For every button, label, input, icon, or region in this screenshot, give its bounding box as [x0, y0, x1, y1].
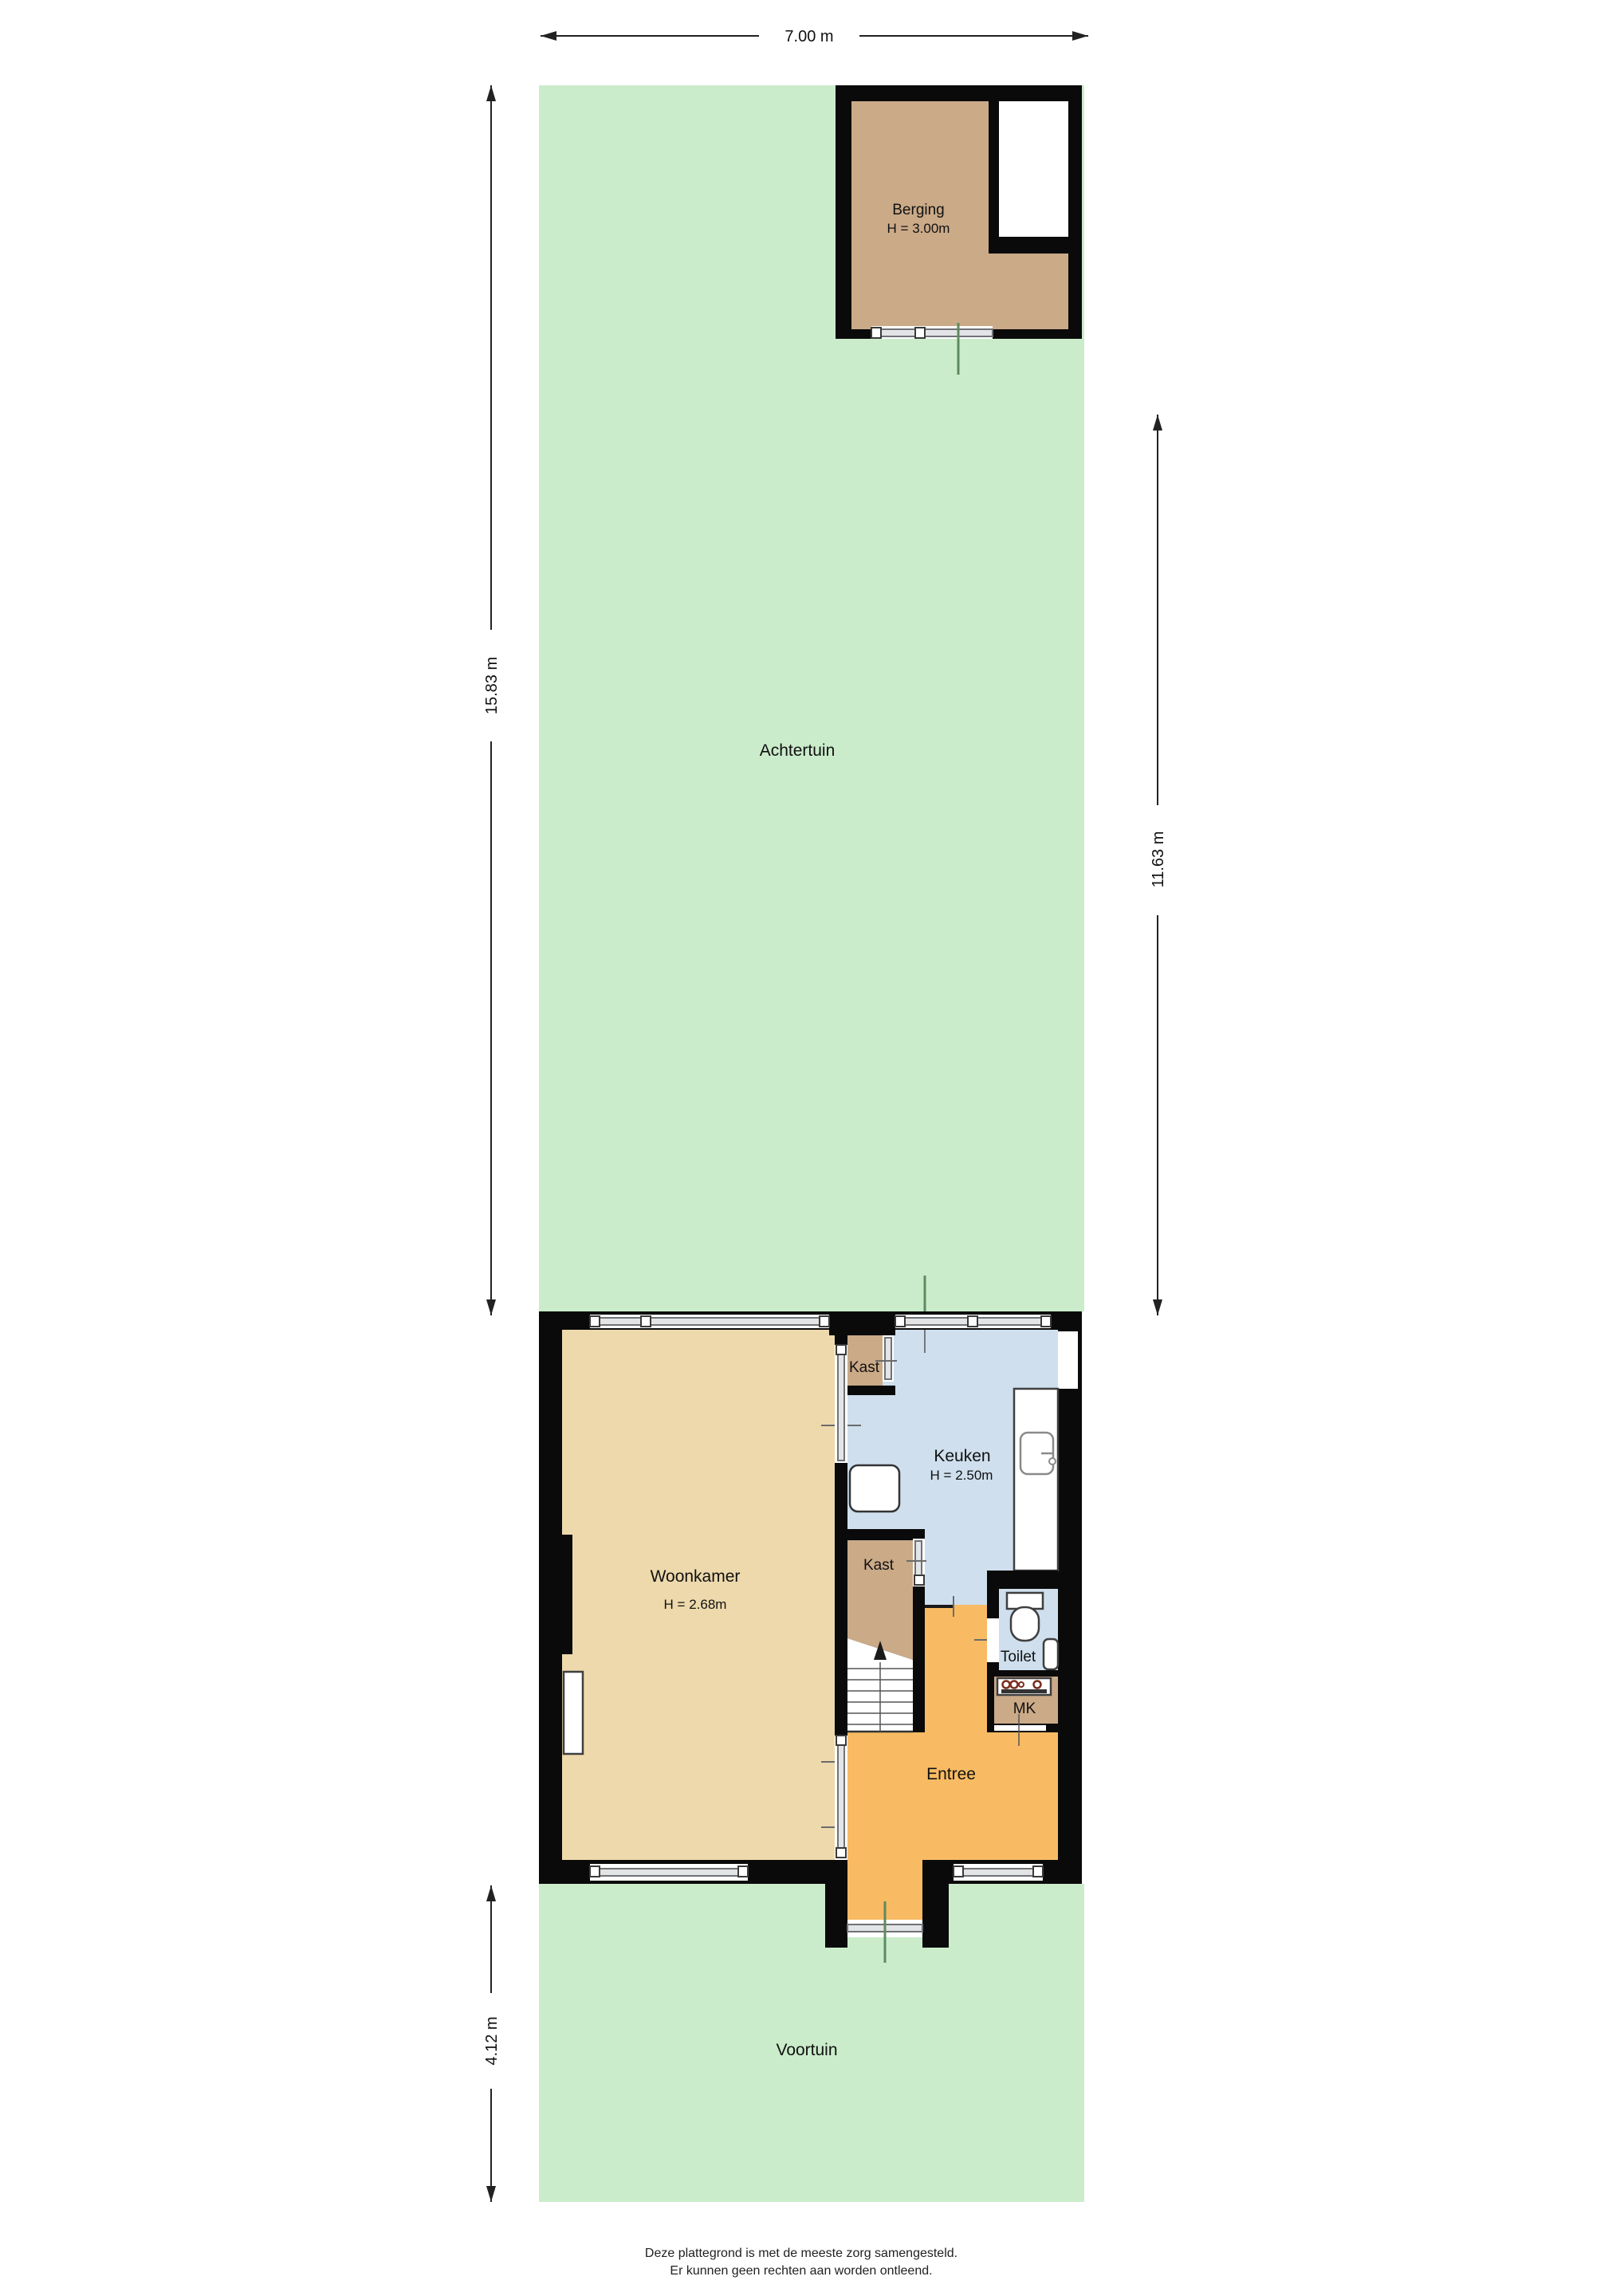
meter-closet-top-wall: [987, 1670, 1058, 1677]
kitchen-label: Keuken: [934, 1447, 990, 1465]
arrow-up-icon: [486, 1885, 496, 1901]
glass-door-pane: [838, 1738, 844, 1854]
shed-niche-wall-vertical: [989, 85, 999, 237]
left-wall-pilaster: [562, 1535, 572, 1654]
window-frame: [590, 1866, 600, 1877]
glass-partition-pane: [838, 1347, 844, 1461]
shed-door-frame-left: [871, 328, 881, 338]
shed-niche: [999, 101, 1068, 237]
faucet-knob-icon: [1049, 1458, 1056, 1464]
stairs-right-wall: [913, 1586, 925, 1732]
window-frame: [738, 1866, 748, 1877]
divider-stub: [835, 1330, 847, 1345]
glass-partition-frame: [836, 1345, 846, 1354]
dimension-garden-height: 15.83 m: [483, 85, 501, 1315]
glass-door-frame: [836, 1736, 846, 1745]
hall-floor-lower: [847, 1732, 1058, 1860]
meter-gauge-icon: [1003, 1681, 1010, 1689]
window-frame: [820, 1316, 829, 1327]
living-room-back-window: [590, 1315, 829, 1328]
closet-middle-top-wall: [847, 1529, 925, 1540]
shed-door-frame-mid: [915, 328, 925, 338]
toilet-top-wall: [987, 1571, 1058, 1589]
arrow-right-icon: [1072, 31, 1088, 41]
closet-top-label: Kast: [849, 1359, 880, 1376]
dimension-front-garden-height: 4.12 m: [483, 1885, 501, 2202]
dimension-label: 11.63 m: [1150, 832, 1167, 888]
window-frame: [641, 1316, 651, 1327]
shed-label: Berging: [892, 202, 945, 218]
window-frame: [954, 1866, 963, 1877]
shed-door-glass: [871, 329, 993, 336]
hall-front-window: [954, 1864, 1043, 1881]
arrow-down-icon: [486, 1299, 496, 1315]
disclaimer-line2: Er kunnen geen rechten aan worden ontlee…: [670, 2264, 932, 2278]
meter-closet-door-opening: [994, 1725, 1046, 1731]
front-garden-label: Voortuin: [776, 2041, 837, 2059]
window-frame: [968, 1316, 977, 1327]
meter-bar: [1001, 1689, 1047, 1693]
window-frame: [590, 1316, 600, 1327]
toilet-door-opening: [987, 1618, 999, 1662]
kitchen-back-window: [895, 1315, 1051, 1328]
hall-label: Entree: [926, 1765, 976, 1783]
kitchen-height-label: H = 2.50m: [930, 1468, 993, 1483]
arrow-down-icon: [486, 2186, 496, 2202]
arrow-down-icon: [1153, 1299, 1162, 1315]
closet-top-bottom-wall: [847, 1386, 895, 1395]
living-room-label: Woonkamer: [651, 1567, 741, 1586]
dimension-top-width: 7.00 m: [541, 28, 1088, 45]
closet-middle-label: Kast: [863, 1557, 895, 1574]
meter-gauge-icon: [1019, 1682, 1024, 1687]
meter-gauge-icon: [1011, 1681, 1018, 1689]
window-glass: [954, 1869, 1043, 1876]
glass-door-frame: [836, 1848, 846, 1858]
arrow-up-icon: [1153, 415, 1162, 431]
dimension-label: 4.12 m: [483, 2016, 501, 2065]
window-frame: [1041, 1316, 1051, 1327]
living-room-height-label: H = 2.68m: [664, 1597, 727, 1612]
right-wall-inset: [1058, 1331, 1078, 1389]
living-room-floor: [562, 1330, 835, 1860]
dimension-label: 7.00 m: [784, 28, 833, 45]
shed-berging: [836, 85, 1082, 375]
back-garden-label: Achtertuin: [760, 741, 836, 760]
arrow-up-icon: [486, 85, 496, 101]
arrow-left-icon: [541, 31, 556, 41]
meter-gauge-icon: [1034, 1681, 1041, 1689]
toilet-bowl-icon: [1011, 1607, 1039, 1641]
window-frame: [1033, 1866, 1043, 1877]
door-leaf: [850, 1465, 899, 1512]
dimension-right-height: 11.63 m: [1150, 415, 1167, 1315]
floorplan-page: 7.00 m 15.83 m 11.63 m 4.12 m Achtertuin…: [0, 0, 1624, 2296]
radiator-icon: [564, 1672, 583, 1754]
kitchen-counter: [1014, 1389, 1058, 1571]
closet-top-glass: [885, 1338, 891, 1379]
hall-floor-upper: [925, 1605, 987, 1732]
floorplan-drawing: 7.00 m 15.83 m 11.63 m 4.12 m Achtertuin…: [0, 0, 1624, 2296]
counter-top: [1014, 1389, 1058, 1571]
toilet-label: Toilet: [1001, 1649, 1036, 1665]
window-glass: [590, 1869, 748, 1876]
closet-middle-frame: [914, 1575, 924, 1585]
shed-niche-wall-horizontal: [989, 237, 1082, 254]
meter-closet-label: MK: [1013, 1700, 1036, 1717]
divider-wall: [835, 1463, 847, 1736]
dimension-label: 15.83 m: [483, 657, 501, 714]
window-frame: [895, 1316, 905, 1327]
living-room-front-window: [590, 1864, 748, 1881]
disclaimer-line1: Deze plattegrond is met de meeste zorg s…: [645, 2247, 957, 2260]
shed-height-label: H = 3.00m: [887, 221, 950, 236]
window-glass: [590, 1318, 829, 1325]
hand-basin-icon: [1044, 1639, 1058, 1669]
